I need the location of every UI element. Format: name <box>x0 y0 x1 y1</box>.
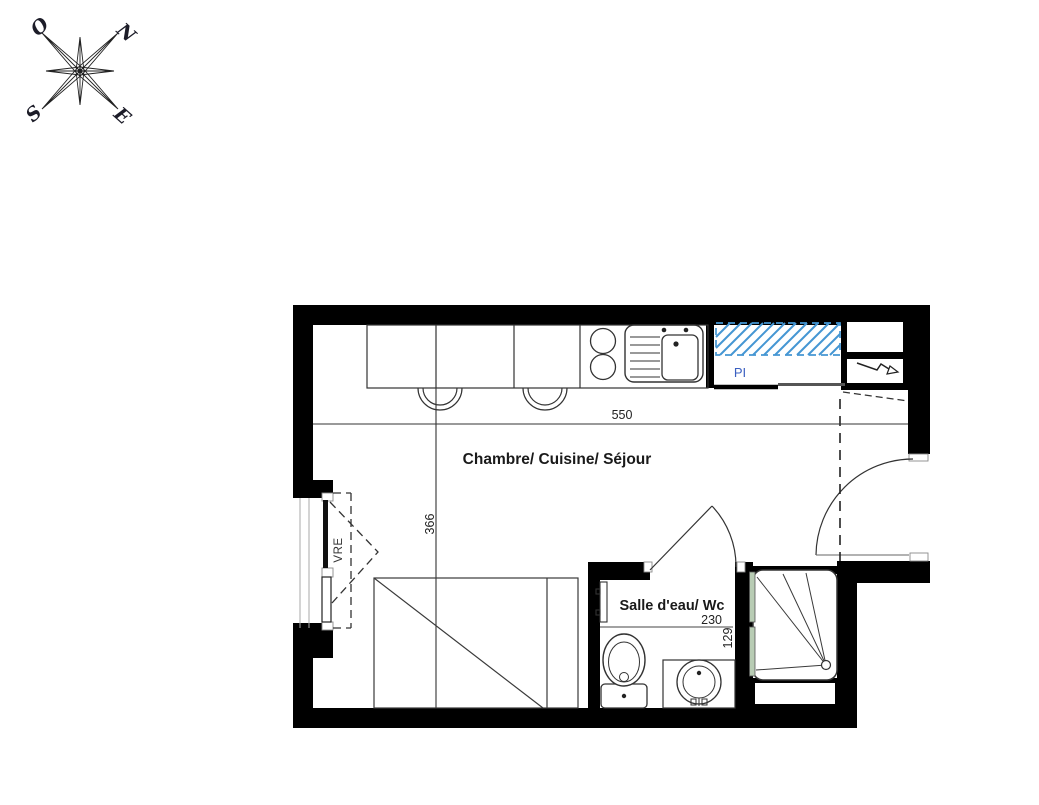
entrance-jamb-bottom <box>910 553 928 561</box>
hob-burner-1 <box>591 329 616 354</box>
bathroom-door-jamb-right <box>737 562 745 572</box>
bathroom-door-arc <box>712 506 736 567</box>
bed-diagonal <box>374 578 543 708</box>
washbasin-inner <box>683 666 715 698</box>
compass-label-west: O <box>26 13 53 41</box>
window-sash-lower <box>322 577 331 622</box>
sink-drain-dot <box>673 341 678 346</box>
hob-burner-2 <box>591 355 616 380</box>
compass-center <box>77 68 82 73</box>
sink-drainer-lines <box>630 337 660 377</box>
bed <box>374 578 578 708</box>
wall-bottom <box>293 708 857 728</box>
counter-dividers <box>436 325 580 388</box>
electrical-closet-compartment-bottom <box>847 359 903 383</box>
bathroom-door-leaf <box>650 506 712 570</box>
washbasin-tap-hole <box>697 671 701 675</box>
window-sash-upper <box>323 500 328 568</box>
compass-label-north: N <box>111 18 140 47</box>
sink-icon <box>625 325 703 382</box>
compass-rose: O N S E <box>22 13 141 129</box>
compass-label-south: S <box>22 101 47 127</box>
wall-bathroom-left <box>588 562 600 708</box>
window-cap-middle <box>322 568 333 577</box>
sink-tap-dot-1 <box>662 328 667 333</box>
toilet-bowl-detail <box>620 673 629 682</box>
shower <box>750 570 838 680</box>
main-room-label: Chambre/ Cuisine/ Séjour <box>463 451 652 468</box>
wall-left-upper <box>293 305 313 498</box>
wall-counter-closet-strip <box>706 325 714 388</box>
radiator-bar <box>600 582 607 622</box>
pi-closet: PI <box>714 323 845 387</box>
window-vre: VRE <box>300 493 378 628</box>
closet-dashed-diagonal <box>843 392 908 401</box>
bathroom: Salle d'eau/ Wc <box>596 506 736 708</box>
pi-hatch-lines <box>716 323 840 355</box>
dim-366-label: 366 <box>423 514 437 535</box>
hob-icon <box>591 329 616 380</box>
window-cap-top <box>322 493 333 501</box>
washbasin-tap <box>691 698 707 706</box>
shower-glass-lower <box>750 627 756 676</box>
dim-550-label: 550 <box>612 408 633 422</box>
shower-drain <box>822 661 831 670</box>
counter-outline <box>367 325 708 388</box>
wall-right-upper <box>908 305 930 454</box>
washbasin-icon <box>663 660 735 708</box>
toilet-tank-dot <box>622 694 626 698</box>
floor-plan-svg: O N S E <box>0 0 1039 800</box>
stool-arc-2 <box>523 388 567 410</box>
entrance-jamb-top <box>909 454 928 461</box>
window-sill-lines <box>300 498 309 628</box>
pi-closet-label: PI <box>734 365 746 380</box>
bathroom-label: Salle d'eau/ Wc <box>620 598 725 614</box>
compass-label-east: E <box>109 102 136 129</box>
bathroom-door-jamb-left <box>644 562 652 572</box>
shower-niche <box>755 683 835 704</box>
window-label: VRE <box>333 537 345 562</box>
kitchen-counter <box>367 325 708 410</box>
shower-glass-upper <box>750 572 756 622</box>
stool-arc-1 <box>418 388 462 410</box>
bathroom-door <box>650 506 736 570</box>
washbasin-outer <box>677 660 721 704</box>
entrance-door-arc <box>816 459 913 555</box>
sink-basin <box>662 335 698 380</box>
dim-230-label: 230 <box>701 613 722 627</box>
electrical-closet-compartment-top <box>847 322 903 352</box>
dim-129-label: 129 <box>721 628 735 649</box>
wall-top <box>293 305 930 325</box>
sink-tap-dot-2 <box>684 328 689 333</box>
toilet-icon <box>601 634 647 708</box>
window-cap-bottom <box>322 622 333 630</box>
entrance-door <box>816 399 913 561</box>
